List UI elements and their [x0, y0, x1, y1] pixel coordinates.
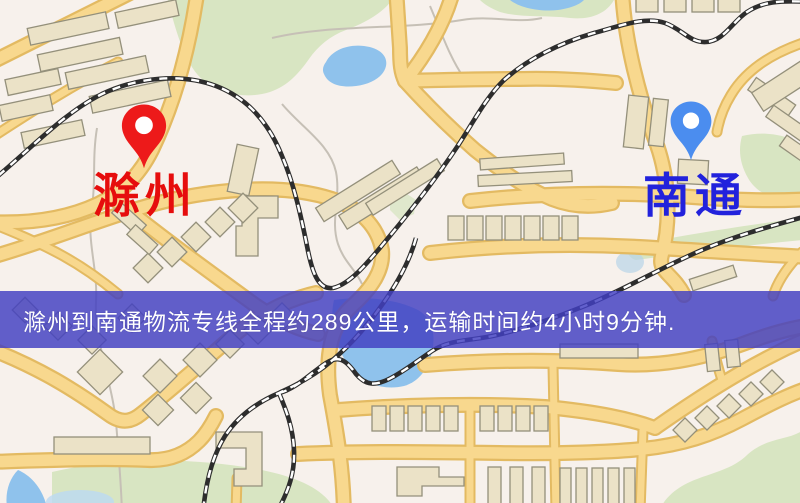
- route-info-text: 滁州到南通物流专线全程约289公里，运输时间约4小时9分钟.: [0, 303, 675, 337]
- pin-body: [122, 105, 166, 169]
- pin-hole: [135, 116, 153, 134]
- pin-body: [671, 102, 712, 161]
- map-artwork: [0, 0, 800, 503]
- location-pin-icon: [667, 100, 715, 163]
- origin-marker[interactable]: [118, 103, 170, 171]
- route-info-banner: 滁州到南通物流专线全程约289公里，运输时间约4小时9分钟.: [0, 291, 800, 348]
- pin-hole: [683, 113, 699, 129]
- route-map-view: 滁州 南通 滁州到南通物流专线全程约289公里，运输时间约4小时9分钟.: [0, 0, 800, 503]
- location-pin-icon: [118, 103, 170, 171]
- destination-label: 南通: [605, 174, 785, 221]
- origin-label: 滁州: [55, 174, 235, 221]
- destination-marker[interactable]: [667, 100, 715, 163]
